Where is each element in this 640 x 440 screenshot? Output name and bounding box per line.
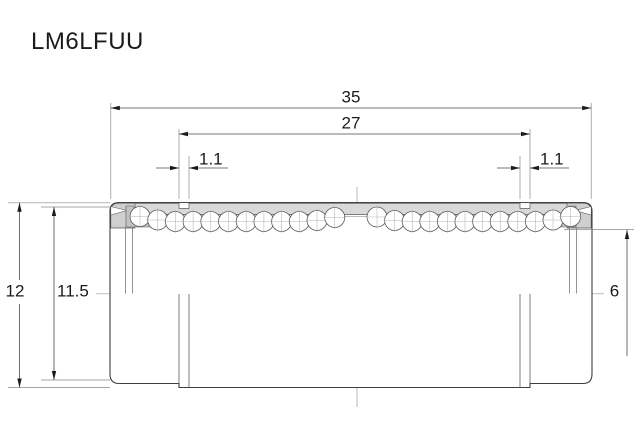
arrowhead-left — [530, 166, 539, 170]
arrowhead-left — [111, 106, 120, 110]
arrowhead-left — [179, 132, 188, 136]
dimension-label-27: 27 — [342, 114, 361, 133]
dimension-1p1-right: 1.1 — [497, 150, 569, 200]
arrowhead-right — [170, 166, 179, 170]
dimension-35: 35 — [111, 88, 591, 200]
dimension-1p1-left: 1.1 — [156, 150, 228, 200]
arrowhead-down — [52, 371, 56, 380]
dimension-label-1p1-right: 1.1 — [540, 150, 564, 169]
dimension-label-1p1-left: 1.1 — [199, 150, 223, 169]
arrowhead-right — [511, 166, 520, 170]
technical-drawing-canvas: LM6LFUU — [0, 0, 640, 440]
arrowhead-down — [17, 379, 21, 388]
dimension-27: 27 — [179, 114, 530, 200]
bearing-body — [110, 203, 592, 388]
arrowhead-up — [52, 207, 56, 216]
dimension-label-35: 35 — [342, 88, 361, 107]
arrowhead-right — [521, 132, 530, 136]
bearing-cross-section-drawing: 35 27 1.1 1.1 — [0, 0, 640, 440]
arrowhead-left — [189, 166, 198, 170]
dimension-label-11p5: 11.5 — [57, 282, 89, 301]
dimension-label-6: 6 — [610, 282, 619, 301]
retaining-ring-groove-right — [520, 203, 530, 209]
arrowhead-up — [17, 203, 21, 212]
retaining-ring-groove-left — [179, 203, 189, 209]
dimension-label-12: 12 — [6, 282, 25, 301]
arrowhead-up — [625, 230, 629, 239]
arrowhead-right — [582, 106, 591, 110]
